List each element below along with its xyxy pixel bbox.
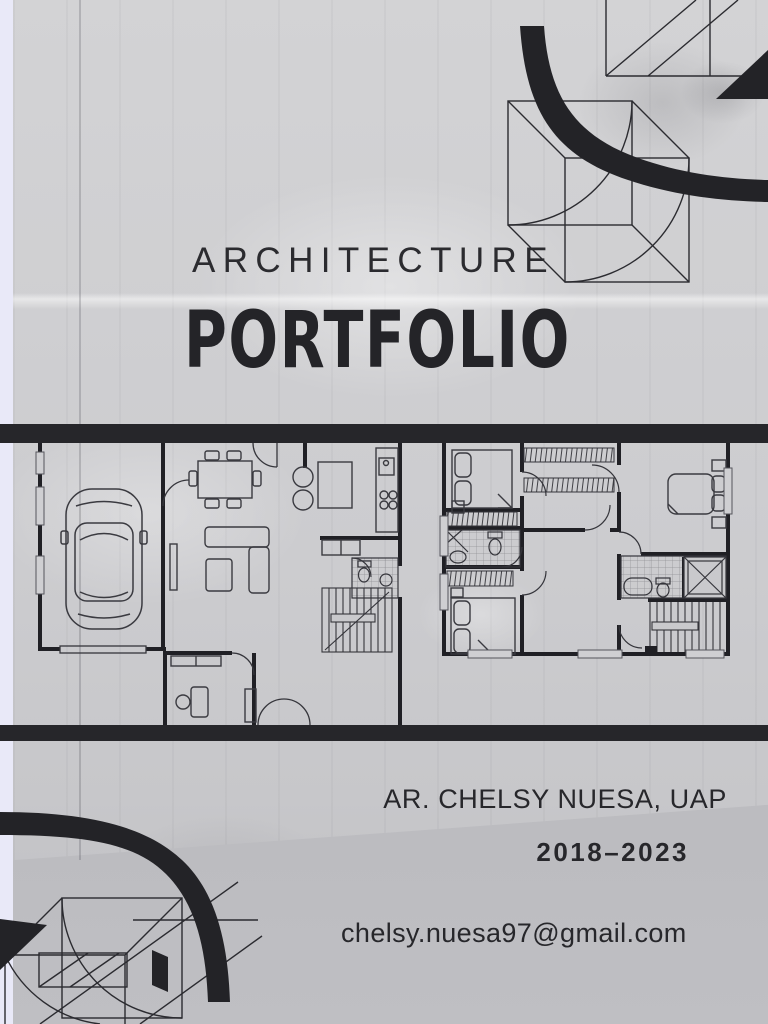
sofa xyxy=(170,527,269,593)
cube-arc-decoration-bottom-left xyxy=(0,812,262,1024)
eyebrow-architecture: ARCHITECTURE xyxy=(192,241,555,281)
slab-bottom-left xyxy=(152,950,168,992)
triangle-bottom-left xyxy=(0,919,47,970)
bedroom-2 xyxy=(451,588,515,654)
cube-arc-decoration-top-right xyxy=(508,0,768,282)
bathroom-2 xyxy=(621,556,726,598)
dining-table xyxy=(189,451,261,508)
plan-bottom-bar xyxy=(0,725,768,741)
master-bedroom xyxy=(668,460,726,528)
plan-top-bar xyxy=(0,424,768,443)
floor-plan-ground xyxy=(36,443,400,725)
bathroom-1 xyxy=(446,530,520,567)
windows-ground xyxy=(36,452,44,594)
contact-email: chelsy.nuesa97@gmail.com xyxy=(341,918,687,949)
swoosh-top-right xyxy=(520,26,768,202)
floor-plan xyxy=(0,424,768,741)
bedroom-1 xyxy=(452,450,512,513)
car-top-view xyxy=(61,489,147,629)
swoosh-bottom-left xyxy=(0,812,230,1002)
bathroom-ground xyxy=(352,558,398,598)
stairs-upper xyxy=(645,602,720,654)
year-range: 2018–2023 xyxy=(536,837,689,868)
portfolio-cover-page: ARCHITECTURE PORTFOLIO AR. CHELSY NUESA,… xyxy=(0,0,768,1024)
floor-plan-upper xyxy=(440,443,732,658)
office xyxy=(171,656,256,722)
author-name: AR. CHELSY NUESA, UAP xyxy=(383,784,727,815)
page-title-portfolio: PORTFOLIO xyxy=(184,296,571,386)
cover-line-art xyxy=(0,0,768,1024)
triangle-top-right xyxy=(716,50,768,99)
